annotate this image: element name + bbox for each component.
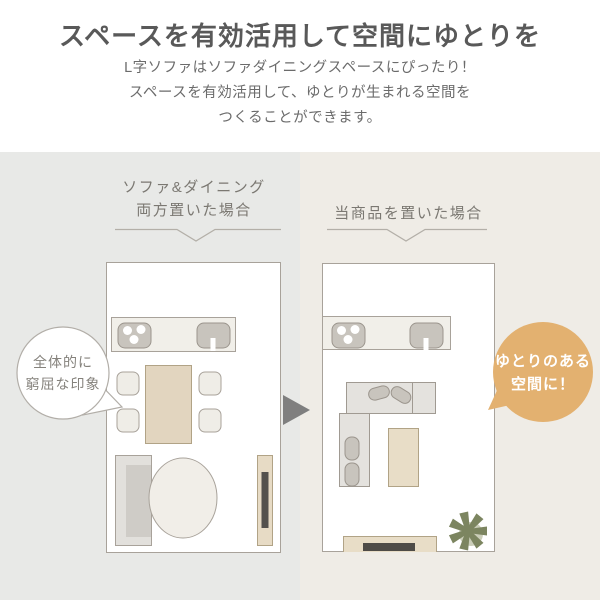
round-rug bbox=[149, 458, 217, 538]
after-caption-notch-line bbox=[327, 228, 487, 246]
after-room-floorplan bbox=[322, 263, 495, 552]
before-bubble-line-1: 全体的に bbox=[16, 351, 110, 373]
dining-chair bbox=[199, 372, 221, 395]
page-subtitle: L字ソファはソファダイニングスペースにぴったり！ スペースを有効活用して、ゆとり… bbox=[0, 56, 600, 131]
sofa-cushion bbox=[345, 463, 359, 486]
straight-sofa bbox=[116, 456, 152, 546]
before-caption-notch-line bbox=[115, 228, 281, 246]
after-bubble-line-2: 空間に！ bbox=[493, 373, 593, 396]
after-bubble-text: ゆとりのある 空間に！ bbox=[493, 350, 593, 396]
before-caption: ソファ&ダイニング 両方置いた場合 bbox=[106, 176, 282, 222]
tv-screen bbox=[262, 472, 269, 528]
before-caption-line-1: ソファ&ダイニング bbox=[106, 176, 282, 199]
header: スペースを有効活用して空間にゆとりを L字ソファはソファダイニングスペースにぴっ… bbox=[0, 0, 600, 152]
sink-icon bbox=[197, 323, 230, 351]
arrow-right-icon bbox=[283, 395, 311, 425]
tv-screen bbox=[363, 543, 415, 551]
coffee-table bbox=[389, 429, 419, 487]
tv-stand bbox=[258, 456, 273, 546]
subtitle-line-1: L字ソファはソファダイニングスペースにぴったり！ bbox=[0, 56, 600, 81]
tv-stand bbox=[344, 537, 437, 553]
stove-icon bbox=[332, 323, 365, 348]
page-title: スペースを有効活用して空間にゆとりを bbox=[0, 16, 600, 53]
after-caption-line-1: 当商品を置いた場合 bbox=[322, 202, 495, 225]
subtitle-line-3: つくることができます。 bbox=[0, 106, 600, 131]
dining-chair bbox=[199, 409, 221, 432]
after-caption: 当商品を置いた場合 bbox=[322, 202, 495, 225]
subtitle-line-2: スペースを有効活用して、ゆとりが生まれる空間を bbox=[0, 81, 600, 106]
after-bubble-line-1: ゆとりのある bbox=[493, 350, 593, 373]
before-caption-line-2: 両方置いた場合 bbox=[106, 199, 282, 222]
comparison-section: ソファ&ダイニング 両方置いた場合 当商品を置いた場合 bbox=[0, 152, 600, 600]
before-bubble-line-2: 窮屈な印象 bbox=[16, 373, 110, 395]
sink-icon bbox=[410, 323, 443, 351]
dining-table bbox=[146, 366, 192, 444]
before-bubble-text: 全体的に 窮屈な印象 bbox=[16, 351, 110, 395]
sofa-cushion bbox=[345, 437, 359, 460]
